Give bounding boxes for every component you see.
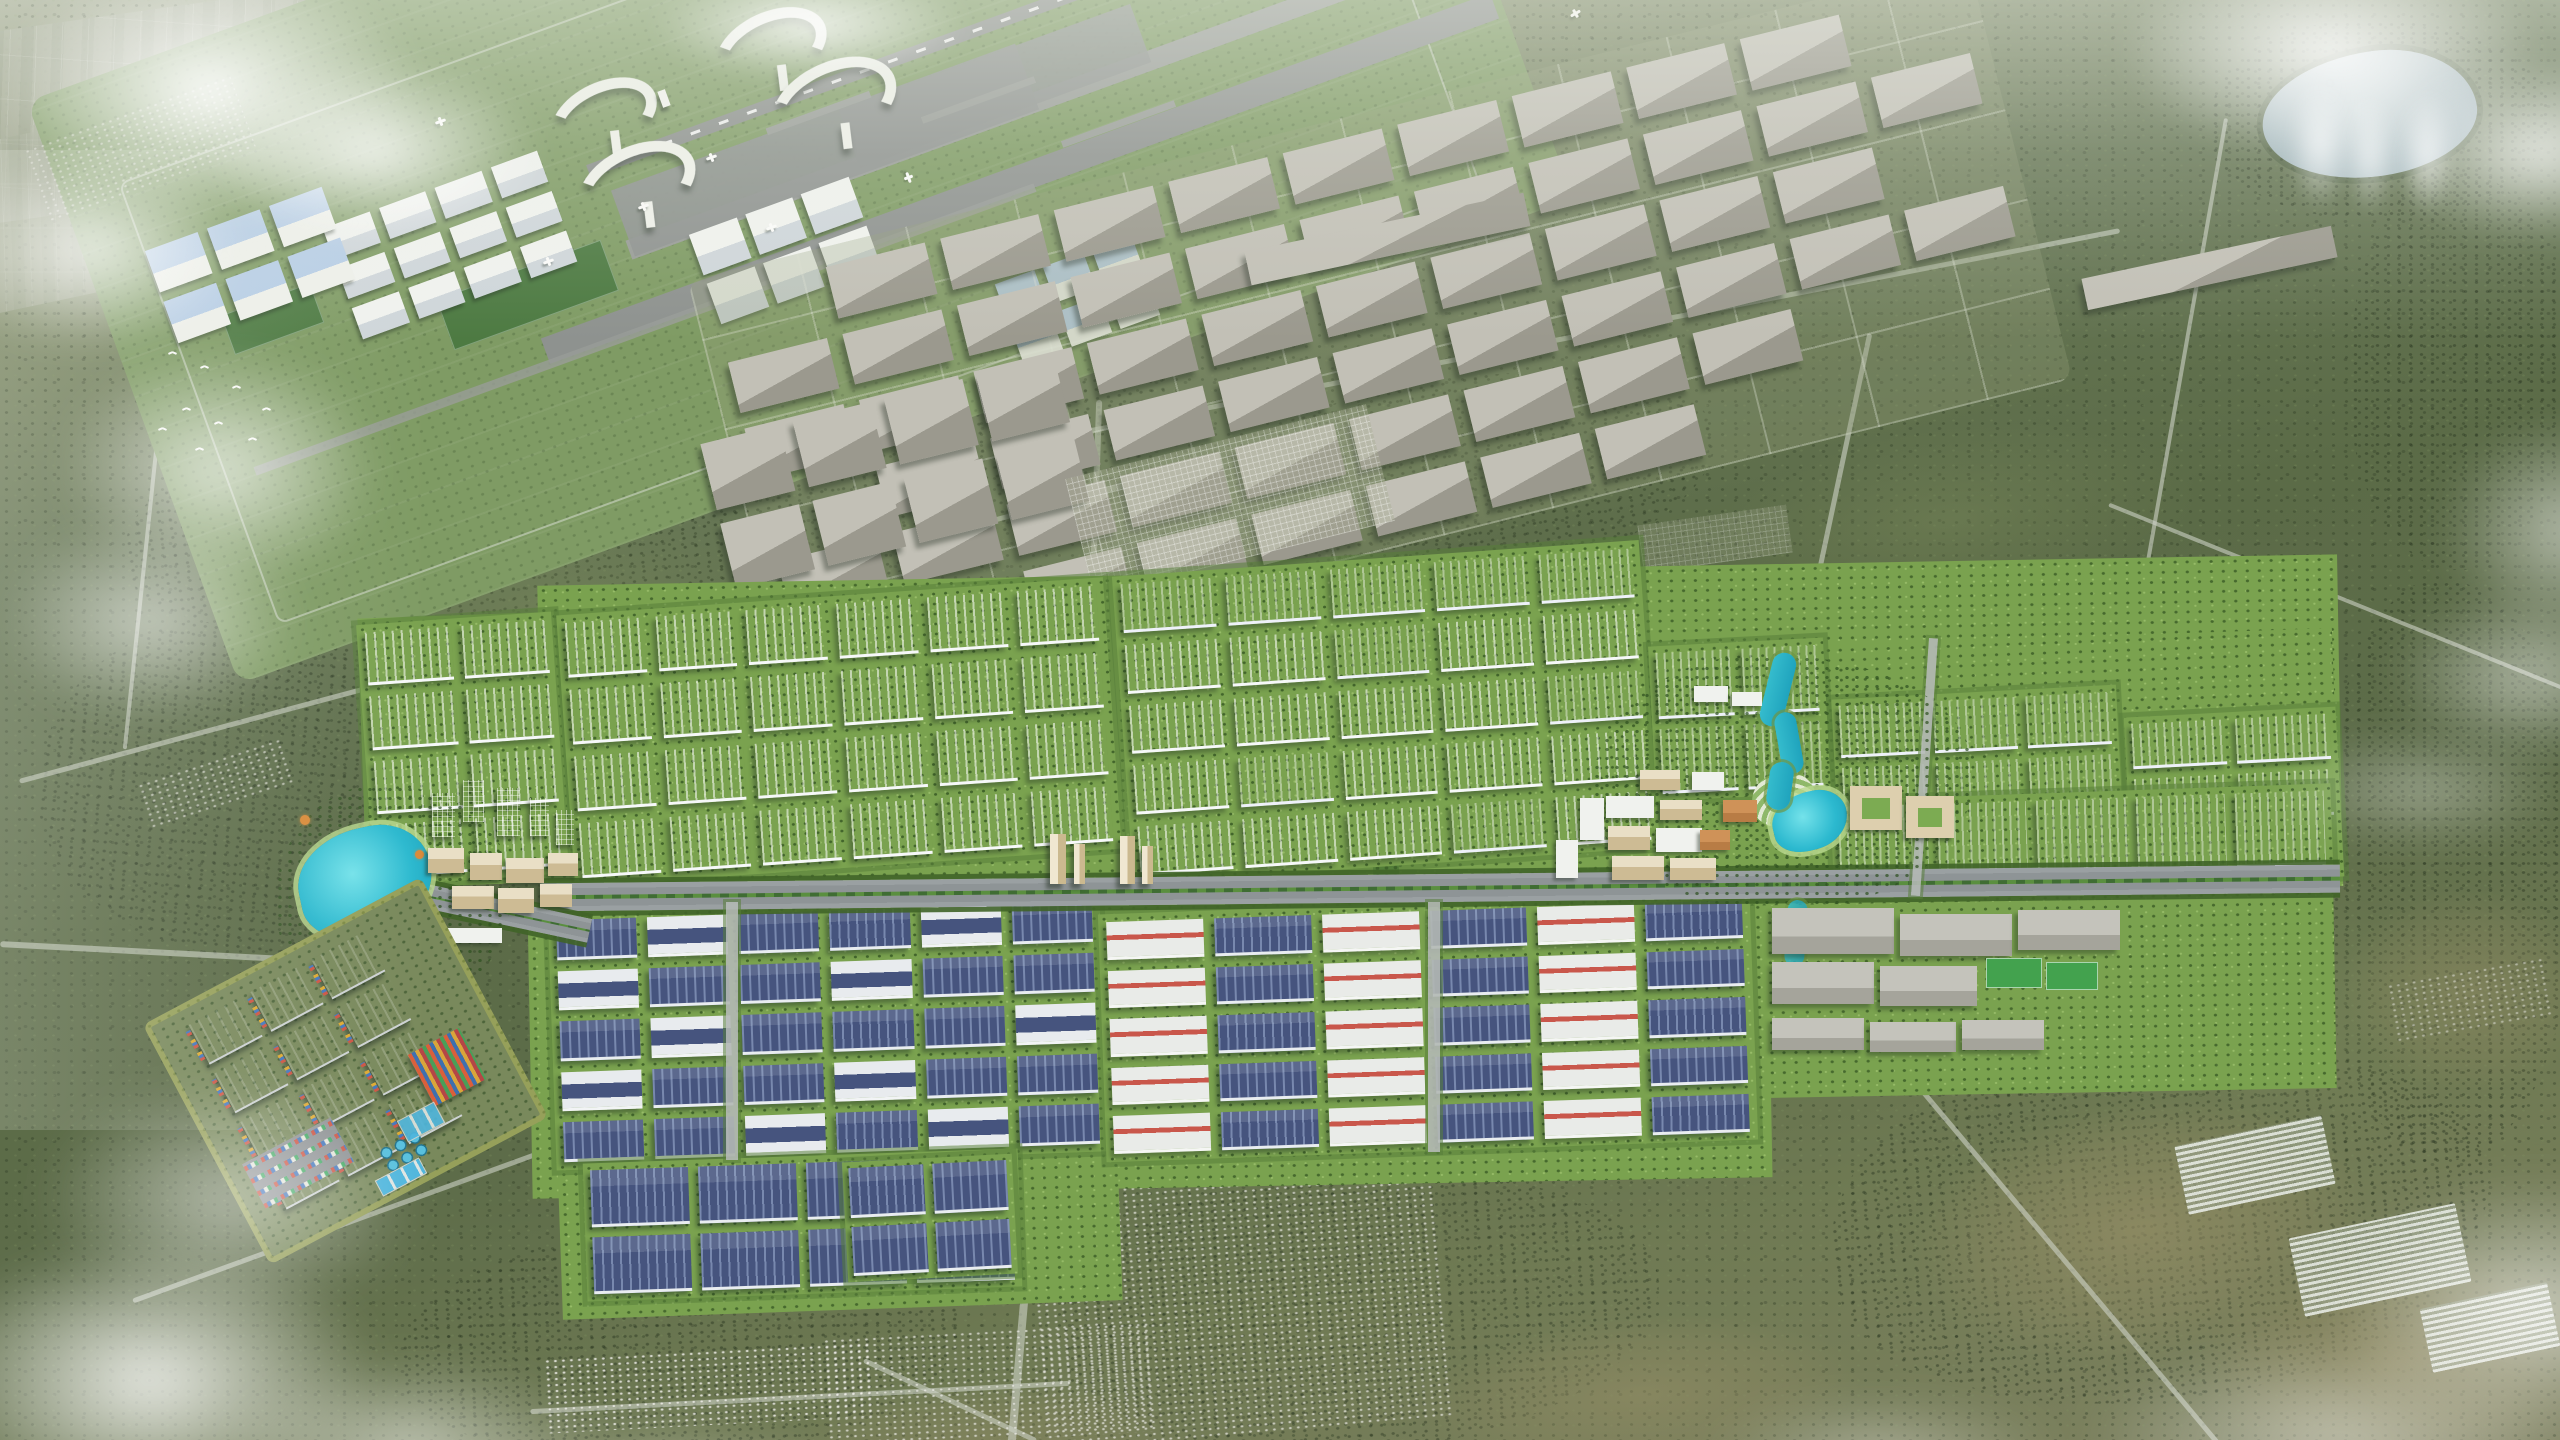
estate-warehouse: [812, 481, 906, 566]
warehouse-solar-roof: [835, 1060, 917, 1102]
warehouse-pale-roof: [845, 732, 927, 792]
campus-building: [1670, 858, 1716, 880]
warehouse-pale-roof: [1543, 609, 1639, 664]
warehouse-pale-roof: [931, 659, 1013, 719]
factory-warehouse: [1870, 1022, 1956, 1052]
terracotta-building: [1723, 800, 1757, 822]
warehouse-solar-roof: [738, 911, 819, 953]
estate-warehouse: [720, 504, 814, 589]
warehouse-roof: [1113, 1113, 1211, 1154]
warehouse-solar-roof: [742, 1012, 823, 1054]
warehouse-pale-roof: [1242, 813, 1338, 868]
factory-warehouse: [2018, 910, 2120, 950]
warehouse-pale-roof: [1346, 806, 1442, 861]
warehouse-pale-roof: [1334, 624, 1430, 679]
warehouse-pale-roof: [579, 818, 661, 878]
gate-tower: [1142, 846, 1153, 884]
warehouse-solar-roof: [1017, 1053, 1098, 1095]
warehouse-solar-roof: [590, 1167, 690, 1227]
warehouse-roof: [1110, 1016, 1208, 1057]
warehouse-pale-roof: [1017, 586, 1099, 646]
warehouse-roof: [1433, 1005, 1531, 1046]
estate-warehouse: [700, 425, 794, 510]
village: [822, 1321, 1157, 1440]
warehouse-roof: [1327, 1057, 1425, 1098]
warehouse-pale-roof: [1125, 638, 1221, 693]
warehouse-solar-roof: [922, 955, 1004, 997]
estate-warehouse: [884, 379, 978, 464]
warehouse-solar-roof: [700, 1230, 800, 1290]
warehouse-pale-roof: [1233, 692, 1329, 747]
warehouse-solar-roof: [1015, 1003, 1096, 1045]
warehouse-pale-roof: [941, 793, 1023, 853]
campus-building: [1694, 686, 1728, 702]
warehouse-solar-roof: [836, 1110, 918, 1152]
warehouse-pale-roof: [1338, 684, 1434, 739]
glass-office-tower: [463, 780, 484, 822]
warehouse-solar-roof: [654, 1117, 736, 1159]
estate-warehouse: [903, 458, 997, 543]
warehouse-solar-roof: [932, 1160, 1009, 1213]
cloud: [2345, 95, 2395, 215]
estate-warehouse: [975, 356, 1069, 441]
warehouse-solar-roof: [831, 959, 913, 1001]
cloud: [210, 60, 540, 240]
warehouse-pale-roof: [841, 665, 923, 725]
warehouse-solar-roof: [740, 962, 821, 1004]
warehouse-roof: [1541, 1001, 1639, 1042]
warehouse-pale-roof: [750, 672, 832, 732]
warehouse-pale-roof: [1031, 786, 1113, 846]
glass-office-tower: [556, 810, 574, 845]
warehouse-pale-roof: [1225, 570, 1321, 625]
gate-tower: [1050, 834, 1066, 884]
warehouse-solar-roof: [924, 1006, 1006, 1048]
warehouse-solar-roof: [592, 1234, 692, 1294]
warehouse-roof: [1544, 1098, 1642, 1139]
estate-warehouse: [792, 402, 886, 487]
apartment-block: [470, 853, 502, 880]
apartment-block: [540, 884, 572, 907]
warehouse-solar-roof: [559, 1019, 640, 1061]
warehouse-pale-roof: [850, 799, 932, 859]
gate-tower: [1120, 836, 1135, 884]
warehouse-pale-roof: [565, 617, 647, 677]
warehouse-district: [548, 893, 1109, 1170]
warehouse-solar-roof: [649, 965, 731, 1007]
warehouse-roof: [1216, 964, 1314, 1005]
warehouse-pale-roof: [1229, 631, 1325, 686]
warehouse-roof: [1645, 900, 1743, 941]
campus-building: [1656, 828, 1702, 852]
warehouse-roof: [1328, 1106, 1426, 1147]
warehouse-pale-roof: [755, 738, 837, 798]
warehouse-pale-roof: [665, 745, 747, 805]
campus-building: [1612, 856, 1664, 880]
sports-pitch: [2046, 962, 2098, 990]
warehouse-pale-roof: [926, 592, 1008, 652]
street: [726, 902, 738, 1160]
warehouse-district: [842, 1154, 1018, 1283]
warehouse-roof: [1108, 967, 1206, 1008]
apartment-block: [548, 853, 578, 876]
warehouse-roof: [1539, 952, 1637, 993]
warehouse-pale-roof: [1330, 563, 1426, 618]
warehouse-pale-roof: [1120, 578, 1216, 633]
cloud: [2270, 730, 2560, 850]
courtyard-building: [1906, 796, 1954, 838]
warehouse-pale-roof: [660, 678, 742, 738]
estate-warehouse: [1480, 432, 1591, 508]
warehouse-solar-roof: [558, 968, 639, 1010]
warehouse-pale-roof: [760, 805, 842, 865]
campus-building: [1640, 770, 1680, 790]
warehouse-blue-roof: [2135, 794, 2227, 871]
apartment-block: [506, 858, 544, 883]
campus-building: [1660, 800, 1702, 820]
warehouse-solar-roof: [920, 905, 1002, 947]
warehouse-roof: [1647, 949, 1745, 990]
terracotta-building: [1700, 830, 1730, 850]
factory-warehouse: [1962, 1020, 2044, 1050]
estate-warehouse: [1594, 404, 1705, 480]
warehouse-solar-roof: [743, 1063, 824, 1105]
warehouse-blue-roof: [2036, 797, 2128, 874]
campus-building: [1608, 826, 1650, 850]
warehouse-solar-roof: [647, 914, 729, 956]
warehouse-pale-roof: [574, 751, 656, 811]
warehouse-roof: [1214, 915, 1312, 956]
warehouse-solar-roof: [1019, 1104, 1100, 1146]
factory-warehouse: [1900, 914, 2012, 956]
warehouse-solar-roof: [651, 1016, 733, 1058]
warehouse-pale-roof: [1022, 653, 1104, 713]
warehouse-pale-roof: [1438, 616, 1534, 671]
warehouse-roof: [1431, 956, 1529, 997]
campus-building: [1732, 692, 1762, 706]
warehouse-roof: [1537, 904, 1635, 945]
warehouse-pale-roof: [1539, 548, 1635, 603]
warehouse-pale-roof: [1451, 798, 1547, 853]
warehouse-district: [1112, 540, 1660, 884]
office-tower: [1556, 840, 1578, 878]
warehouse-roof: [1322, 911, 1420, 952]
office-tower: [1580, 798, 1604, 840]
gate-tower: [1074, 844, 1085, 884]
warehouse-district: [556, 577, 1122, 887]
warehouse-solar-roof: [851, 1223, 928, 1276]
warehouse-pale-roof: [461, 620, 550, 679]
warehouse-pale-roof: [936, 726, 1018, 786]
cloud: [2290, 80, 2350, 210]
warehouse-solar-roof: [698, 1163, 798, 1223]
warehouse-roof: [1106, 919, 1204, 960]
glass-office-tower: [432, 793, 455, 837]
warehouse-pale-roof: [1026, 719, 1108, 779]
warehouse-pale-roof: [1133, 760, 1229, 815]
apartment-block: [452, 886, 494, 909]
warehouse-solar-roof: [927, 1107, 1009, 1149]
estate-warehouse: [1463, 366, 1574, 442]
warehouse-pale-roof: [1342, 745, 1438, 800]
factory-warehouse: [1772, 962, 1874, 1004]
warehouse-roof: [1429, 907, 1527, 948]
warehouse-roof: [1111, 1064, 1209, 1105]
warehouse-roof: [1325, 1008, 1423, 1049]
warehouse-solar-roof: [829, 908, 911, 950]
warehouse-pale-roof: [1129, 699, 1225, 754]
warehouse-pale-roof: [836, 598, 918, 658]
factory-warehouse: [1880, 966, 1977, 1006]
warehouse-solar-roof: [1013, 952, 1094, 994]
warehouse-roof: [1219, 1061, 1317, 1102]
warehouse-roof: [1648, 997, 1746, 1038]
warehouse-roof: [1650, 1046, 1748, 1087]
warehouse-solar-roof: [848, 1164, 925, 1217]
warehouse-pale-roof: [465, 684, 554, 743]
apartment-block: [498, 888, 534, 913]
cloud: [0, 520, 300, 720]
apartment-block: [428, 848, 464, 873]
warehouse-roof: [1436, 1102, 1534, 1143]
warehouse-roof: [1323, 960, 1421, 1001]
aerial-masterplan-render: [0, 0, 2560, 1440]
warehouse-solar-roof: [652, 1066, 734, 1108]
warehouse-roof: [1435, 1053, 1533, 1094]
warehouse-pale-roof: [655, 611, 737, 671]
warehouse-roof: [1542, 1049, 1640, 1090]
sports-pitch: [1986, 958, 2042, 988]
warehouse-solar-roof: [563, 1120, 644, 1162]
warehouse-pale-roof: [569, 684, 651, 744]
warehouse-roof: [1217, 1012, 1315, 1053]
street: [1428, 902, 1440, 1152]
warehouse-blue-roof: [2131, 719, 2227, 769]
cloud: [2400, 90, 2455, 215]
campus-building: [1606, 796, 1654, 818]
estate-warehouse: [728, 338, 839, 414]
courtyard-building: [1850, 786, 1902, 830]
warehouse-solar-roof: [1011, 902, 1092, 944]
warehouse-pale-roof: [1443, 677, 1539, 732]
factory-warehouse: [1772, 1018, 1864, 1050]
factory-warehouse: [1772, 908, 1894, 954]
warehouse-pale-roof: [1447, 738, 1543, 793]
warehouse-solar-roof: [745, 1114, 826, 1156]
warehouse-solar-roof: [935, 1218, 1012, 1271]
campus-building: [1692, 772, 1724, 790]
warehouse-pale-roof: [669, 812, 751, 872]
warehouse-solar-roof: [926, 1057, 1008, 1099]
warehouse-solar-roof: [833, 1009, 915, 1051]
warehouse-roof: [1652, 1094, 1750, 1135]
glass-office-tower: [530, 798, 549, 836]
warehouse-blue-roof: [2026, 692, 2112, 748]
warehouse-solar-roof: [561, 1069, 642, 1111]
glass-office-tower: [497, 788, 520, 836]
warehouse-roof: [1221, 1109, 1319, 1150]
warehouse-pale-roof: [1434, 556, 1530, 611]
estate-warehouse: [1578, 337, 1689, 413]
warehouse-pale-roof: [746, 605, 828, 665]
warehouse-pale-roof: [1238, 752, 1334, 807]
